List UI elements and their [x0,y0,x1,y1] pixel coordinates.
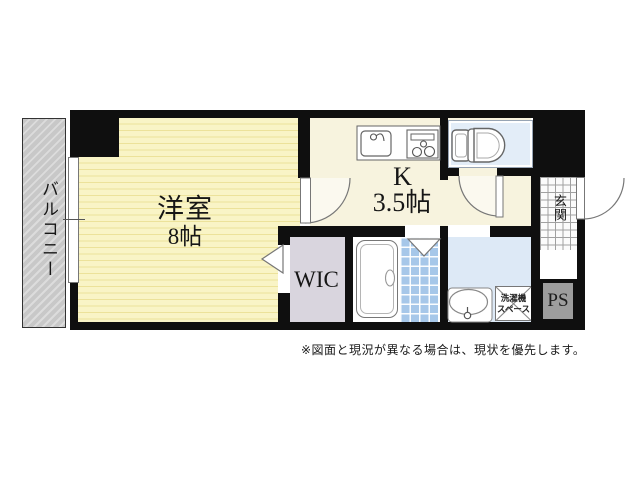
living-room-size: 8帖 [140,225,230,249]
bath-folding-door-icon [408,239,440,256]
wic-label: WIC [288,268,345,292]
floor-plan: PS [0,0,640,480]
wash-basin-icon [448,288,492,322]
kitchen-label: K [375,163,430,190]
kitchen-sink-icon [361,131,391,156]
living-kitchen-door-swing-icon [301,178,351,223]
symbol-overlay [0,0,640,480]
gas-stove-icon [407,130,438,158]
disclaimer-note: ※図面と現況が異なる場合は、現状を優先します。 [301,341,585,358]
toilet-door-swing-icon [459,176,503,217]
entrance-door-swing-icon [577,178,625,220]
kitchen-counter [357,126,440,160]
bathtub-drain [386,270,395,286]
kitchen-size: 3.5帖 [363,189,441,216]
living-room-label: 洋室 [140,195,230,223]
balcony-label: バルコニー [33,160,57,300]
wic-folding-door-icon [262,245,283,273]
entrance-label: 玄関 [549,190,566,226]
toilet-icon [452,129,505,163]
laundry-space-label: 洗濯機 スペース [495,286,532,321]
